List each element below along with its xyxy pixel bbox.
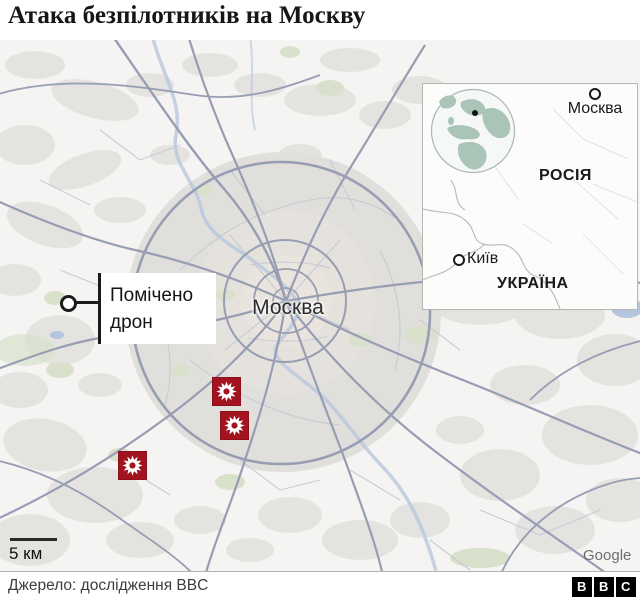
bbc-logo-block: B [572,577,592,597]
kyiv-marker-icon [453,254,465,266]
inset-label-moscow: Москва [553,100,637,118]
explosion-icon [220,411,249,440]
globe-icon [432,90,515,173]
google-attribution: Google [583,547,631,564]
callout-text-line1: Помічено [110,282,216,309]
page-title: Атака безпілотників на Москву [8,2,628,30]
bbc-logo-block: C [616,577,636,597]
source-credit: Джерело: дослідження BBC [8,577,208,595]
explosion-marker [118,451,147,480]
moscow-map: Помічено дрон Москва 5 км Google [0,40,640,571]
explosion-marker [212,377,241,406]
infographic: Атака безпілотників на Москву [0,0,640,603]
inset-label-russia: РОСІЯ [539,167,592,185]
drone-callout: Помічено дрон [98,273,216,344]
explosion-icon [212,377,241,406]
footer: Джерело: дослідження BBC B B C [0,572,640,603]
bbc-logo-block: B [594,577,614,597]
scale-bar [10,538,57,541]
callout-text-line2: дрон [110,309,216,336]
drone-location-marker-icon [60,295,77,312]
moscow-dot-on-globe-icon [472,110,478,116]
inset-label-ukraine: УКРАЇНА [497,275,569,293]
inset-label-kyiv: Київ [467,250,498,268]
bbc-logo: B B C [572,577,636,597]
inset-locator-map: Москва РОСІЯ Київ УКРАЇНА [422,83,638,310]
explosion-icon [118,451,147,480]
scale-label: 5 км [9,544,42,564]
moscow-marker-icon [589,88,601,100]
city-label-moscow: Москва [236,296,340,320]
explosion-marker [220,411,249,440]
